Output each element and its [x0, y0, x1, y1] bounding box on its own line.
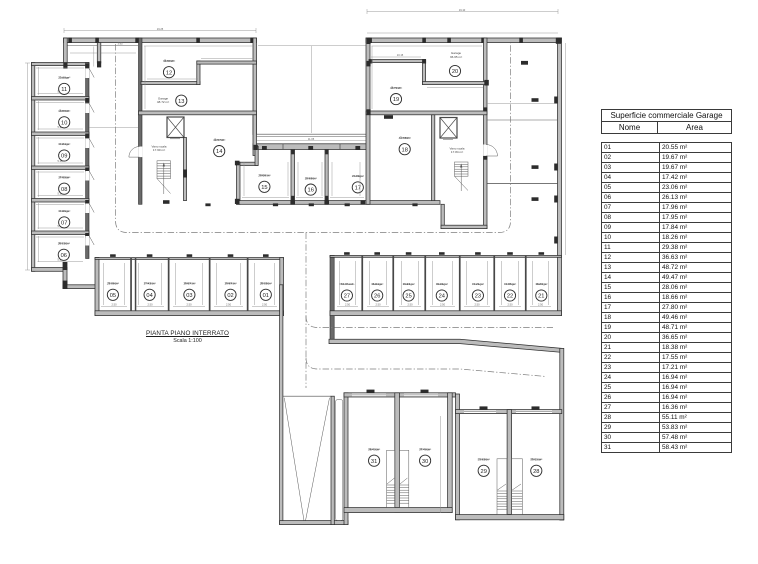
svg-text:48.72 m²: 48.72 m²: [157, 100, 169, 104]
svg-text:07: 07: [61, 221, 67, 227]
svg-text:19: 19: [393, 97, 399, 103]
svg-text:24: 24: [439, 294, 445, 300]
svg-text:25: 25: [405, 294, 411, 300]
svg-text:58.43 m²: 58.43 m²: [368, 447, 380, 451]
svg-text:16.94 m²: 16.94 m²: [371, 282, 383, 286]
svg-text:16.94 m²: 16.94 m²: [436, 282, 448, 286]
svg-text:08: 08: [61, 187, 67, 193]
svg-text:13: 13: [178, 99, 184, 105]
svg-text:29.38 m²: 29.38 m²: [58, 76, 70, 80]
svg-text:17.21 m²: 17.21 m²: [472, 282, 484, 286]
svg-text:21: 21: [538, 294, 544, 300]
svg-text:55.11 m²: 55.11 m²: [530, 458, 542, 462]
svg-text:17.42 m²: 17.42 m²: [143, 282, 155, 286]
svg-text:49.47 m²: 49.47 m²: [213, 138, 225, 142]
svg-text:2.50: 2.50: [186, 303, 192, 307]
svg-text:53.83 m²: 53.83 m²: [478, 458, 490, 462]
svg-text:16: 16: [308, 188, 314, 194]
svg-text:17.96 m²: 17.96 m²: [58, 209, 70, 213]
svg-text:14: 14: [216, 149, 222, 155]
svg-text:12: 12: [166, 70, 172, 76]
svg-text:2.50: 2.50: [345, 303, 351, 307]
svg-text:23.06 m²: 23.06 m²: [107, 282, 119, 286]
svg-text:49.46 m²: 49.46 m²: [399, 136, 411, 140]
svg-text:18.66 m²: 18.66 m²: [305, 176, 317, 180]
svg-text:28.06 m²: 28.06 m²: [258, 174, 270, 178]
svg-text:29: 29: [481, 469, 487, 475]
svg-text:36.65 m²: 36.65 m²: [450, 55, 462, 59]
svg-text:23: 23: [475, 294, 481, 300]
svg-text:3.95: 3.95: [117, 42, 123, 46]
svg-text:2.50: 2.50: [538, 303, 544, 307]
svg-text:28: 28: [533, 469, 539, 475]
svg-text:03: 03: [186, 293, 192, 299]
svg-text:36.63 m²: 36.63 m²: [163, 59, 175, 63]
svg-text:2.50: 2.50: [226, 303, 232, 307]
svg-text:20.55 m²: 20.55 m²: [260, 282, 272, 286]
svg-text:27: 27: [344, 294, 350, 300]
svg-text:31: 31: [371, 459, 377, 465]
svg-text:2.50: 2.50: [147, 303, 153, 307]
svg-text:2.50: 2.50: [111, 303, 117, 307]
svg-text:2.50: 2.50: [262, 303, 268, 307]
svg-text:19.67 m²: 19.67 m²: [224, 282, 236, 286]
svg-text:17.60 m²: 17.60 m²: [153, 148, 165, 152]
svg-text:06: 06: [61, 253, 67, 259]
svg-text:30: 30: [422, 459, 428, 465]
svg-text:18.26 m²: 18.26 m²: [58, 109, 70, 113]
svg-text:18.38 m²: 18.38 m²: [535, 282, 547, 286]
svg-text:22: 22: [507, 294, 513, 300]
svg-text:2.50: 2.50: [375, 303, 381, 307]
svg-text:2.50: 2.50: [407, 303, 413, 307]
svg-text:2.50: 2.50: [474, 303, 480, 307]
svg-text:10.15: 10.15: [397, 53, 404, 57]
svg-text:11: 11: [61, 87, 67, 93]
svg-text:48.71 m²: 48.71 m²: [390, 86, 402, 90]
svg-text:18: 18: [402, 147, 408, 153]
svg-text:17.55 m²: 17.55 m²: [504, 282, 516, 286]
svg-text:2.50: 2.50: [507, 303, 513, 307]
svg-text:05: 05: [110, 293, 116, 299]
svg-text:19.25: 19.25: [157, 27, 164, 31]
svg-text:09: 09: [61, 154, 67, 160]
svg-text:17.84 m²: 17.84 m²: [451, 150, 463, 154]
svg-text:17.84 m²: 17.84 m²: [58, 142, 70, 146]
svg-text:15: 15: [261, 185, 267, 191]
svg-text:17.95 m²: 17.95 m²: [58, 175, 70, 179]
svg-text:2.50: 2.50: [440, 303, 446, 307]
svg-text:20: 20: [452, 69, 458, 75]
svg-text:16.94 m²: 16.94 m²: [402, 282, 414, 286]
svg-text:16.36 m²: 16.36 m²: [341, 282, 353, 286]
svg-text:02: 02: [227, 293, 233, 299]
svg-text:26.13 m²: 26.13 m²: [58, 242, 70, 246]
svg-text:27.80 m²: 27.80 m²: [352, 174, 364, 178]
svg-text:10: 10: [61, 120, 67, 126]
svg-text:19.67 m²: 19.67 m²: [183, 282, 195, 286]
svg-text:26: 26: [374, 294, 380, 300]
svg-text:04: 04: [146, 293, 152, 299]
svg-text:57.48 m²: 57.48 m²: [419, 447, 431, 451]
svg-text:11.05: 11.05: [308, 137, 315, 141]
svg-text:19.10: 19.10: [459, 8, 466, 12]
svg-text:01: 01: [263, 293, 269, 299]
